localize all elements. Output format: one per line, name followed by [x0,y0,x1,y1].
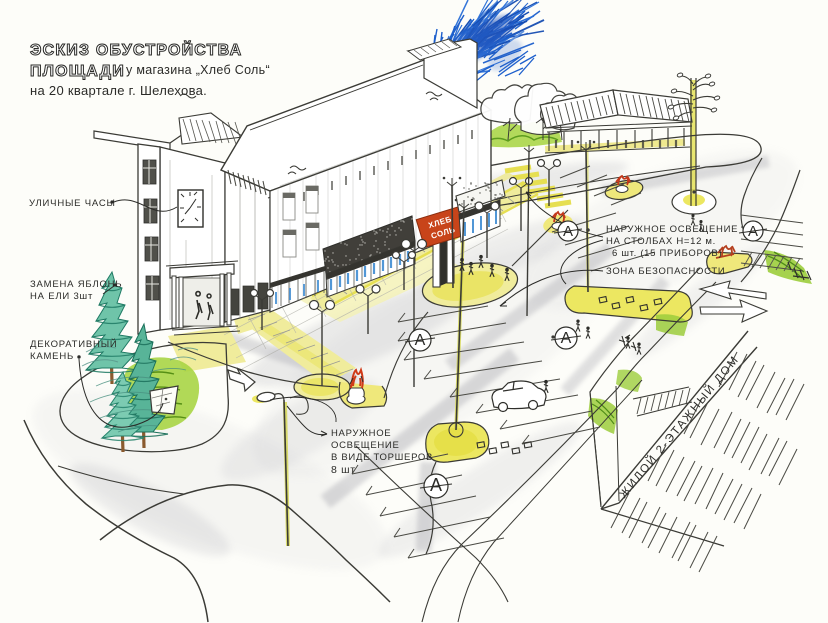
svg-text:НАРУЖНОЕ: НАРУЖНОЕ [331,428,391,439]
svg-text:ОСВЕЩЕНИЕ: ОСВЕЩЕНИЕ [331,440,400,451]
svg-text:НА ЕЛИ 3шт: НА ЕЛИ 3шт [30,291,93,302]
svg-text:6 шт. (15 ПРИБОРОВ): 6 шт. (15 ПРИБОРОВ) [612,248,722,259]
svg-text:УЛИЧНЫЕ ЧАСЫ: УЛИЧНЫЕ ЧАСЫ [29,198,116,209]
svg-text:НАРУЖНОЕ ОСВЕЩЕНИЕ: НАРУЖНОЕ ОСВЕЩЕНИЕ [606,224,738,235]
svg-text:ПЛОЩАДИ: ПЛОЩАДИ [30,63,125,80]
svg-text:на 20 квартале г. Шелехова.: на 20 квартале г. Шелехова. [30,83,207,98]
svg-text:ЗАМЕНА ЯБЛОНЬ: ЗАМЕНА ЯБЛОНЬ [30,279,122,290]
svg-text:ДЕКОРАТИВНЫЙ: ДЕКОРАТИВНЫЙ [30,338,118,350]
svg-text:В ВИДЕ ТОРШЕРОВ: В ВИДЕ ТОРШЕРОВ [331,452,433,463]
svg-text:у магазина „Хлеб Соль“: у магазина „Хлеб Соль“ [126,63,270,77]
svg-text:НА СТОЛБАХ Н=12 м.: НА СТОЛБАХ Н=12 м. [606,236,716,247]
svg-text:ЗОНА БЕЗОПАСНОСТИ: ЗОНА БЕЗОПАСНОСТИ [606,266,725,277]
svg-text:8 шт: 8 шт [331,464,356,476]
svg-text:ЭСКИЗ ОБУСТРОЙСТВА: ЭСКИЗ ОБУСТРОЙСТВА [30,40,242,59]
svg-text:КАМЕНЬ: КАМЕНЬ [30,351,74,362]
